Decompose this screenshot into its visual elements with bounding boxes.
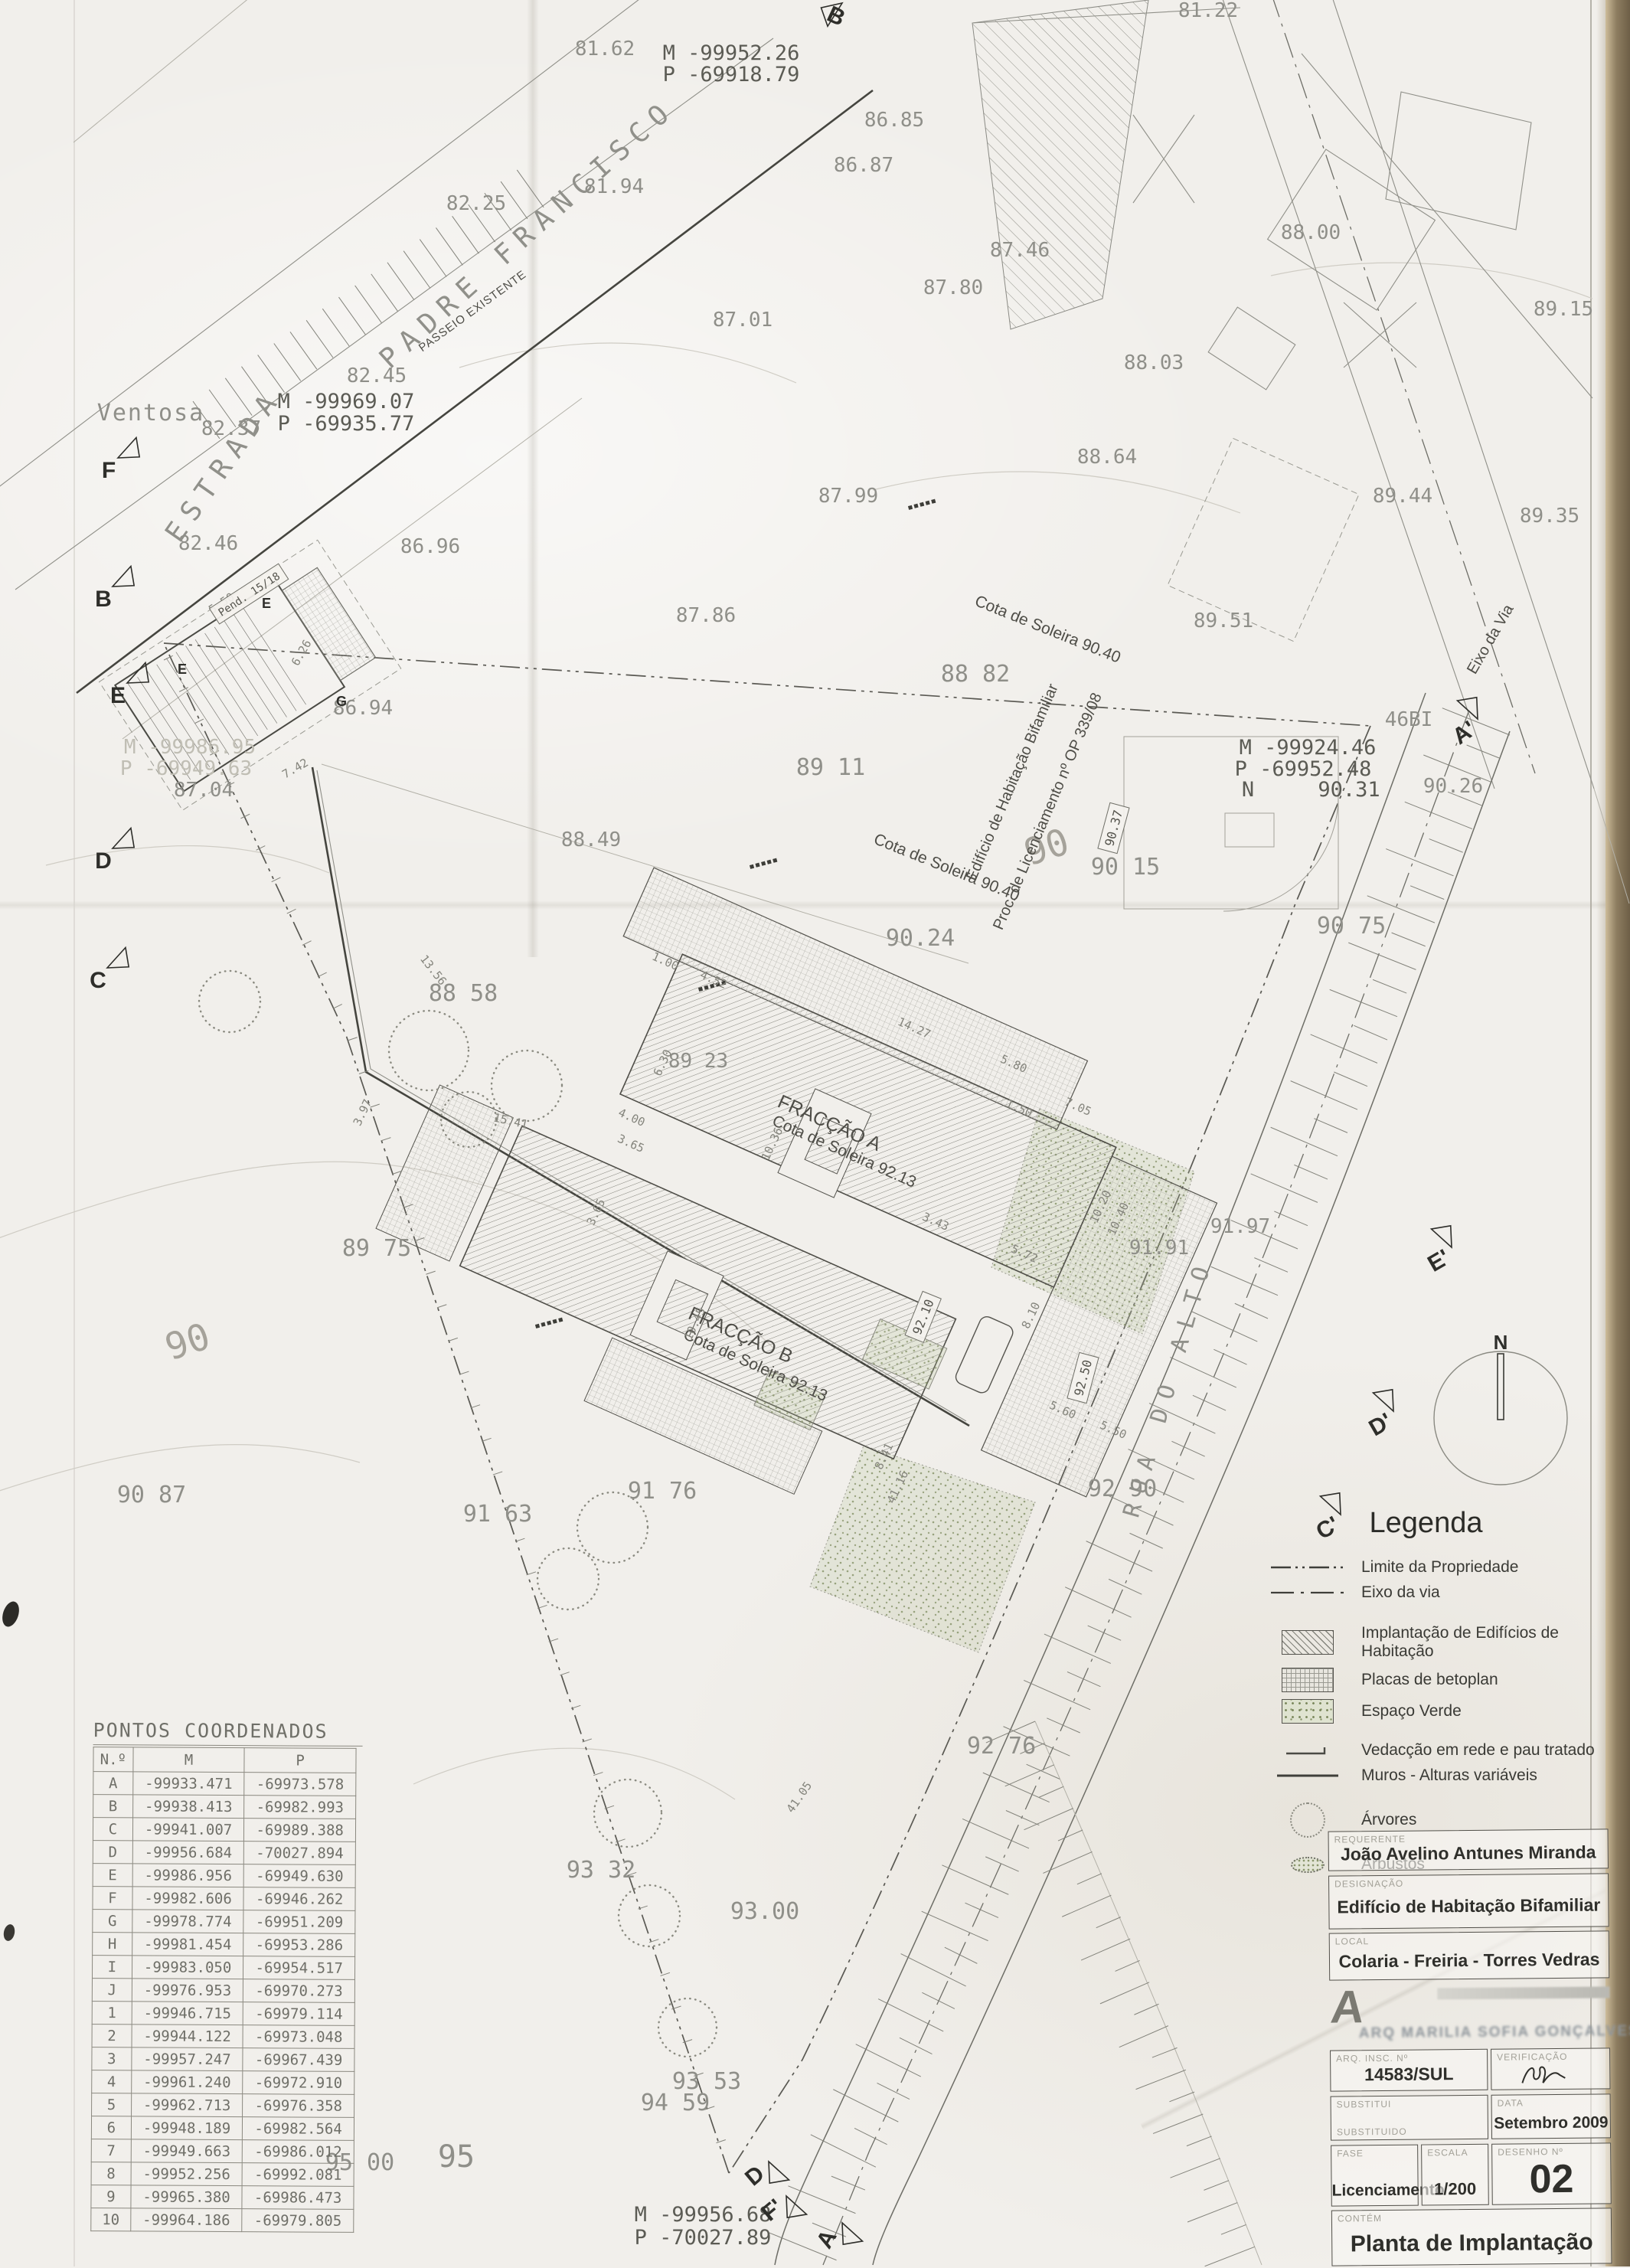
coordinate-cell: A — [93, 1772, 133, 1795]
plan-label: M -99952.26 — [663, 41, 800, 65]
plan-label: 91.97 — [1210, 1215, 1270, 1238]
slope-tick — [1274, 1211, 1308, 1226]
slope-tick — [1005, 1765, 1054, 1786]
slope-tick — [1081, 1939, 1130, 1960]
coordinate-cell: -69979.114 — [243, 2002, 355, 2026]
tree-symbol — [537, 1548, 599, 1609]
wall-symbol — [1271, 1772, 1344, 1779]
section-marker-letter: E — [110, 683, 126, 708]
coordinate-cell: 4 — [92, 2070, 132, 2093]
plan-label: P -69918.79 — [663, 63, 800, 87]
requerente-box: REQUERENTE João Avelino Antunes Miranda — [1328, 1828, 1609, 1871]
ink-blot — [0, 1600, 22, 1629]
arq-insc-box: ARQ. INSC. Nº 14583/SUL — [1330, 2049, 1488, 2092]
slope-tick — [1077, 1874, 1102, 1884]
slope-tick — [493, 1472, 502, 1475]
car-symbol — [953, 1314, 1015, 1394]
escala-box: ESCALA 1/200 — [1421, 2144, 1489, 2206]
coordinate-cell: 6 — [91, 2116, 131, 2139]
coordinate-cell: -69982.564 — [243, 2117, 354, 2141]
section-marker-flag — [1431, 1220, 1460, 1251]
slope-tick — [1062, 1895, 1111, 1917]
slope-tick — [1119, 2026, 1168, 2047]
legend-item-muros: Muros - Alturas variáveis — [1271, 1766, 1612, 1785]
slope-tick — [1373, 979, 1406, 993]
slope-tick — [1152, 2047, 1178, 2057]
plan-label: 82.25 — [446, 192, 506, 215]
coordinate-cell: 3 — [92, 2047, 132, 2070]
plan-label: Cota de Soleira 90.40 — [972, 592, 1123, 666]
slope-tick — [985, 1857, 1018, 1871]
slope-tick — [1187, 2203, 1237, 2222]
section-marker-flag — [114, 437, 145, 466]
coordinate-cell: 2 — [92, 2025, 132, 2047]
section-marker-letter: E — [178, 662, 187, 677]
slope-tick — [322, 309, 349, 346]
slope-tick — [403, 251, 430, 289]
col-header-m: M — [133, 1747, 245, 1773]
coordinate-cell: -99952.256 — [131, 2162, 243, 2186]
plan-label: Ventosa — [97, 400, 204, 426]
plan-label: 90.26 — [1423, 775, 1483, 798]
plan-label: 92 90 — [1088, 1476, 1157, 1502]
coordinate-cell: -69973.578 — [244, 1773, 356, 1796]
slope-tick — [1271, 1127, 1338, 1155]
coordinate-cell: -69992.081 — [242, 2163, 354, 2187]
escala-value: 1/200 — [1422, 2179, 1488, 2200]
legend: Legenda Limite da Propriedade Eixo da vi… — [1271, 1507, 1612, 1881]
slope-tick — [459, 1371, 469, 1374]
section-marker-letter: C — [90, 968, 106, 993]
coordinate-cell: -69986.012 — [243, 2140, 354, 2164]
slope-tick — [1291, 1081, 1357, 1109]
coordinate-row: 2-99944.122-69973.048 — [92, 2025, 354, 2049]
stamp-bar — [1437, 1986, 1609, 1999]
tree-symbol — [389, 1011, 469, 1090]
slope-tick — [449, 1338, 458, 1341]
coordinate-cell: -69972.910 — [243, 2071, 354, 2095]
coordinate-cell: -99944.122 — [132, 2025, 243, 2048]
coordinate-cell: -70027.894 — [244, 1842, 356, 1865]
plan-label: 88.00 — [1281, 221, 1341, 244]
slope-tick — [1100, 1982, 1149, 2004]
slope-tick — [1169, 2092, 1194, 2102]
plan-label: 4.00 — [616, 1106, 647, 1129]
plan-label: ▪▪▪▪▪ — [533, 1313, 565, 1332]
plan-label: 81.22 — [1178, 0, 1238, 22]
coordinate-cell: -99938.413 — [132, 1795, 244, 1819]
coordinate-row: A-99933.471-69973.578 — [93, 1772, 356, 1796]
plan-label: M -99924.46 — [1240, 736, 1377, 760]
slope-tick — [1405, 802, 1472, 828]
coordinate-cell: I — [92, 1956, 132, 1979]
section-marker-letter: D — [740, 2161, 769, 2191]
tree-symbol — [594, 1779, 661, 1847]
road-estrada-padre-francisco — [0, 0, 873, 739]
fase-value: Licenciamento — [1332, 2181, 1418, 2201]
designacao-box: DESIGNAÇÃO Edifício de Habitação Bifamil… — [1328, 1873, 1609, 1929]
coordinate-cell: -69954.517 — [243, 1956, 355, 1980]
plan-label: 89.51 — [1194, 609, 1253, 632]
section-marker-flag — [103, 947, 135, 976]
slope-tick — [1221, 2224, 1246, 2234]
slope-tick — [482, 1438, 491, 1441]
slope-tick — [1109, 1579, 1142, 1594]
coordinate-row: 10-99964.186-69979.805 — [91, 2208, 354, 2233]
slope-tick — [1348, 943, 1416, 969]
slope-tick — [1006, 1811, 1039, 1825]
plan-label: P -70027.89 — [635, 2226, 772, 2250]
plan-label: 89.44 — [1373, 485, 1432, 508]
plan-label: 86.87 — [834, 154, 893, 177]
verificacao-box: VERIFICAÇÃO — [1491, 2047, 1610, 2090]
section-marker-flag — [834, 2219, 863, 2250]
slope-tick — [1429, 839, 1463, 853]
slope-tick — [306, 320, 333, 358]
coordinate-cell: -99941.007 — [132, 1818, 244, 1842]
slope-tick — [333, 1004, 342, 1008]
slope-tick — [1067, 1672, 1100, 1686]
coordinate-row: 5-99962.713-69976.358 — [92, 2093, 354, 2118]
legend-item-eix: Eixo da via — [1271, 1583, 1612, 1602]
coordinate-cell: 9 — [91, 2185, 131, 2208]
plan-label: 87.01 — [713, 309, 773, 332]
coordinate-cell: 1 — [92, 2002, 132, 2025]
stamp-architect-name: ARQ MARILIA SOFIA GONÇALVES COELHO — [1359, 2023, 1610, 2042]
plan-label: 95 — [438, 2139, 475, 2175]
shrub-symbol — [1291, 1857, 1325, 1873]
slope-tick — [290, 332, 317, 369]
slope-tick — [318, 972, 327, 977]
slope-tick — [452, 216, 479, 253]
coordinate-row: E-99986.956-69949.630 — [93, 1864, 355, 1888]
plan-label: 3.97 — [351, 1097, 375, 1128]
slope-tick — [877, 2083, 910, 2099]
slope-tick — [1204, 2181, 1229, 2191]
data-value: Setembro 2009 — [1492, 2113, 1610, 2132]
legend-item-vedaccao: Vedacção em rede e pau tratado — [1271, 1741, 1612, 1760]
coordinate-cell: -69949.630 — [243, 1864, 355, 1888]
coordinate-cell: -69967.439 — [243, 2048, 354, 2072]
slope-tick — [1116, 1960, 1140, 1971]
plan-label: 90 — [160, 1315, 215, 1369]
plan-label: P -69949.63 — [120, 757, 252, 780]
slope-tick — [1024, 1680, 1090, 1709]
plan-label: 87.04 — [174, 779, 234, 802]
coordinate-cell: -69979.805 — [242, 2209, 354, 2233]
compass-n-label: N — [1494, 1331, 1508, 1354]
legend-item-espaco-verde: Espaço Verde — [1271, 1699, 1612, 1724]
slope-tick — [1214, 1349, 1246, 1364]
ink-blot — [2, 1923, 16, 1942]
coordinate-row: J-99976.953-69970.273 — [92, 1979, 354, 2003]
plan-label: 92 76 — [967, 1733, 1036, 1760]
section-marker-letter: D' — [1365, 1408, 1396, 1441]
slope-tick — [1187, 2136, 1212, 2146]
scanned-site-plan-sheet: { "page": {"paper_color": "#f1efeb", "ed… — [0, 0, 1630, 2266]
plan-label: 90.31 — [1318, 778, 1380, 802]
coordinate-cell: -69989.388 — [244, 1819, 356, 1842]
coordinate-cell: -69951.209 — [243, 1910, 355, 1934]
slope-tick — [811, 2135, 876, 2167]
coordinate-row: F-99982.606-69946.262 — [93, 1887, 355, 1911]
slope-tick — [1193, 1395, 1226, 1410]
plan-label: 91 76 — [628, 1478, 697, 1505]
plan-label: M -99986.95 — [124, 736, 256, 759]
coordinate-cell: -99949.663 — [131, 2139, 243, 2163]
plan-label: 87.80 — [923, 276, 983, 299]
slope-tick — [1354, 1025, 1387, 1040]
section-marker-letter: F — [102, 458, 116, 483]
coordinate-cell: -99964.186 — [131, 2208, 243, 2232]
arq-insc-value: 14583/SUL — [1331, 2064, 1487, 2086]
plan-label: 88.49 — [561, 828, 621, 851]
substitui-box: SUBSTITUI SUBSTITUIDO — [1331, 2095, 1488, 2141]
coordinate-cell: H — [93, 1933, 132, 1956]
plan-label: 87.86 — [676, 604, 736, 627]
plan-label: 86.85 — [864, 109, 924, 132]
col-header-numero: N.º — [93, 1747, 133, 1772]
plan-label: 90 15 — [1091, 854, 1160, 881]
plan-label: 87.99 — [818, 485, 878, 508]
plan-label: 93 32 — [567, 1857, 635, 1884]
col-header-p: P — [244, 1748, 356, 1773]
slope-tick — [1153, 2114, 1203, 2133]
architect-stamp: A ARQ MARILIA SOFIA GONÇALVES COELHO — [1329, 1982, 1610, 2044]
plan-label: 90.24 — [886, 925, 955, 952]
coordinate-cell: -99976.953 — [132, 1979, 243, 2002]
slope-tick — [945, 1947, 978, 1963]
north-compass: N — [1434, 1331, 1567, 1485]
section-marker-letter: G — [336, 694, 347, 709]
plan-label: 90 75 — [1317, 913, 1386, 940]
slope-tick — [287, 909, 296, 913]
plan-label: P -69935.77 — [278, 412, 415, 436]
plan-label: 88 82 — [941, 661, 1010, 688]
desenho-num-value: 02 — [1492, 2155, 1611, 2202]
slope-tick — [1311, 1034, 1377, 1063]
plan-label: 89.15 — [1534, 298, 1593, 321]
dashdot-line-sample — [1271, 1590, 1344, 1596]
table-header-row: N.º M P — [93, 1747, 356, 1773]
coordinate-cell: -99981.454 — [132, 1933, 243, 1956]
coordinate-cell: D — [93, 1841, 132, 1864]
plan-label: 93.00 — [730, 1898, 799, 1925]
stamp-logo: A — [1329, 1984, 1367, 2030]
slope-tick — [1235, 1303, 1268, 1319]
slope-tick — [788, 2186, 855, 2214]
fence-symbol — [1271, 1743, 1344, 1758]
section-marker-flag — [1373, 1384, 1402, 1415]
coordinate-cell: -69953.286 — [243, 1933, 355, 1957]
plan-label: M -99969.07 — [278, 390, 415, 413]
slope-tick — [274, 343, 301, 381]
coordinate-cell: -99986.956 — [132, 1864, 244, 1887]
data-box: DATA Setembro 2009 — [1491, 2093, 1612, 2139]
section-marker-flag — [109, 828, 140, 857]
coordinate-cell: -99982.606 — [132, 1887, 244, 1910]
section-marker-letter: B — [95, 587, 112, 612]
coordinate-cell: J — [92, 1979, 132, 2002]
slope-tick — [962, 1819, 1029, 1848]
coordinate-cell: -69973.048 — [243, 2025, 354, 2049]
slope-tick — [1047, 1718, 1080, 1733]
slope-tick — [878, 1999, 943, 2031]
slope-tick — [1130, 1533, 1163, 1548]
slope-tick — [833, 2090, 898, 2122]
plan-label: 88.64 — [1077, 446, 1137, 469]
slope-tick — [1171, 1441, 1204, 1456]
plan-label: 87.46 — [990, 239, 1050, 262]
coordinate-cell: -99933.471 — [133, 1772, 245, 1796]
coordinate-cell: -99948.189 — [131, 2116, 243, 2140]
coordinate-cell: C — [93, 1818, 132, 1841]
coordinate-row: 1-99946.715-69979.114 — [92, 2002, 354, 2026]
section-marker-flag — [109, 566, 140, 595]
legend-item-implantacao: Implantação de Edifícios de Habitação — [1271, 1624, 1612, 1661]
slope-tick — [560, 1672, 569, 1675]
plan-label: 89 23 — [668, 1050, 728, 1073]
coordinate-cell: -99965.380 — [131, 2185, 243, 2209]
slope-tick — [1086, 1541, 1152, 1572]
grid-hatch-swatch — [1282, 1668, 1334, 1692]
coordinate-row: 4-99961.240-69972.910 — [92, 2070, 354, 2095]
coordinate-cell: -69946.262 — [243, 1887, 355, 1911]
coordinate-row: D-99956.684-70027.894 — [93, 1841, 355, 1865]
slope-tick — [381, 1138, 390, 1141]
legend-title: Legenda — [1271, 1507, 1581, 1540]
title-block: REQUERENTE João Avelino Antunes Miranda … — [1328, 1828, 1612, 2267]
slope-tick — [1171, 2159, 1220, 2178]
plan-label: 3.65 — [616, 1132, 646, 1155]
plan-label: 7.42 — [279, 756, 310, 782]
designacao-value: Edifício de Habitação Bifamiliar — [1329, 1894, 1608, 1917]
slope-tick — [338, 297, 365, 335]
coordinate-cell: E — [93, 1864, 132, 1887]
dashdotdot-line-sample — [1271, 1564, 1344, 1570]
plan-label: M -99956.68 — [635, 2203, 772, 2227]
local-box: LOCAL Colaria - Freiria - Torres Vedras — [1329, 1930, 1610, 1980]
plan-label: 94 59 — [641, 2090, 710, 2116]
plan-label: 6.26 — [289, 637, 315, 668]
coordinate-cell: -99946.715 — [132, 2002, 243, 2025]
slope-tick — [1334, 1072, 1367, 1087]
coordinate-cell: G — [93, 1910, 132, 1933]
legend-item-betoplan: Placas de betoplan — [1271, 1668, 1612, 1692]
slope-tick — [901, 1954, 966, 1986]
coordinate-cell: B — [93, 1795, 133, 1818]
coordinate-cell: -99961.240 — [131, 2070, 243, 2094]
coordinate-cell: -99956.684 — [132, 1841, 244, 1864]
coordinate-row: 7-99949.663-69986.012 — [91, 2139, 354, 2164]
plan-label: Cota de Soleira 90.40 — [871, 830, 1022, 904]
plan-label: 81.62 — [575, 38, 635, 60]
slope-tick — [1294, 1165, 1328, 1179]
coordinate-row: 9-99965.380-69986.473 — [91, 2185, 354, 2210]
slope-tick — [965, 1903, 998, 1917]
slope-tick — [1096, 1917, 1121, 1928]
plan-label: ▪▪▪▪▪ — [906, 495, 938, 514]
tree-symbol — [492, 1051, 562, 1121]
section-marker-letter: E' — [1423, 1245, 1454, 1277]
neighbor-plot-mid-right — [1124, 438, 1359, 911]
tree-symbol — [1290, 1802, 1325, 1838]
slope-tick — [437, 1305, 446, 1308]
plan-label: PADRE FRANCISCO — [374, 93, 682, 374]
plan-label: 86.96 — [400, 535, 460, 558]
coordinate-cell: 10 — [91, 2208, 131, 2231]
slope-tick — [922, 1992, 955, 2008]
desenho-num-box: DESENHO Nº 02 — [1491, 2142, 1612, 2204]
slope-tick — [831, 2176, 865, 2190]
section-marker-letter: D — [95, 848, 112, 874]
slope-tick — [1043, 1851, 1092, 1873]
slope-tick — [854, 2128, 887, 2144]
plan-label: 89 11 — [796, 754, 865, 781]
slope-tick — [471, 1405, 480, 1408]
slope-tick — [1134, 2004, 1158, 2015]
slope-tick — [1136, 2070, 1186, 2089]
neighbor-buildings-top-right — [972, 0, 1592, 398]
coordinate-cell: -99962.713 — [131, 2093, 243, 2117]
tree-symbol — [619, 1885, 680, 1946]
slope-tick — [426, 1271, 435, 1274]
tree-symbol — [199, 971, 260, 1032]
slope-tick — [1392, 933, 1426, 946]
coordinate-cell: -99978.774 — [132, 1910, 244, 1933]
coordinate-cell: F — [93, 1887, 132, 1910]
coordinate-cell: -69976.358 — [243, 2094, 354, 2118]
plan-label: 90 87 — [117, 1482, 186, 1508]
slope-tick — [256, 846, 266, 851]
plan-label: 88.03 — [1124, 351, 1184, 374]
coordinate-cell: -69986.473 — [242, 2186, 354, 2210]
coordinate-row: H-99981.454-69953.286 — [93, 1933, 355, 1957]
diagonal-hatch-swatch — [1282, 1630, 1334, 1655]
coordinates-table-title: PONTOS COORDENADOS — [93, 1719, 363, 1747]
slope-tick — [515, 1538, 524, 1541]
drawing-title: Planta de Implantação — [1332, 2229, 1611, 2257]
coordinate-cell: -99983.050 — [132, 1956, 243, 1979]
slope-tick — [420, 240, 446, 277]
local-value: Colaria - Freiria - Torres Vedras — [1330, 1949, 1609, 1972]
coordinate-row: 3-99957.247-69967.439 — [92, 2047, 354, 2072]
plan-label: 91 63 — [463, 1501, 532, 1528]
section-marker-letter: E — [262, 596, 271, 611]
slope-tick — [1251, 1174, 1318, 1202]
slope-tick — [371, 274, 398, 312]
coordinate-cell: 7 — [91, 2139, 131, 2162]
coordinate-row: 6-99948.189-69982.564 — [91, 2116, 354, 2141]
coordinate-cell: 5 — [92, 2093, 132, 2116]
slope-tick — [1039, 1786, 1063, 1797]
slope-tick — [1088, 1626, 1121, 1640]
slope-tick — [1410, 886, 1444, 900]
contem-box: CONTÉM Planta de Implantação — [1331, 2208, 1612, 2266]
slope-tick — [1211, 1266, 1278, 1295]
plan-label: N — [1242, 778, 1254, 802]
plan-label: 91.91 — [1129, 1237, 1189, 1260]
coordinate-cell: -69982.993 — [244, 1796, 356, 1819]
green-stipple-swatch — [1282, 1699, 1334, 1724]
coordinates-table-grid: N.º M P A-99933.471-69973.578B-99938.413… — [90, 1747, 356, 2233]
legend-item-limite: Limite da Propriedade — [1271, 1558, 1612, 1577]
slope-tick — [1314, 1119, 1347, 1133]
slope-tick — [355, 286, 382, 323]
plan-label: Eixo da Via — [1464, 601, 1517, 677]
slope-tick — [1058, 1830, 1083, 1841]
plan-label: ▪▪▪▪▪ — [747, 854, 779, 873]
